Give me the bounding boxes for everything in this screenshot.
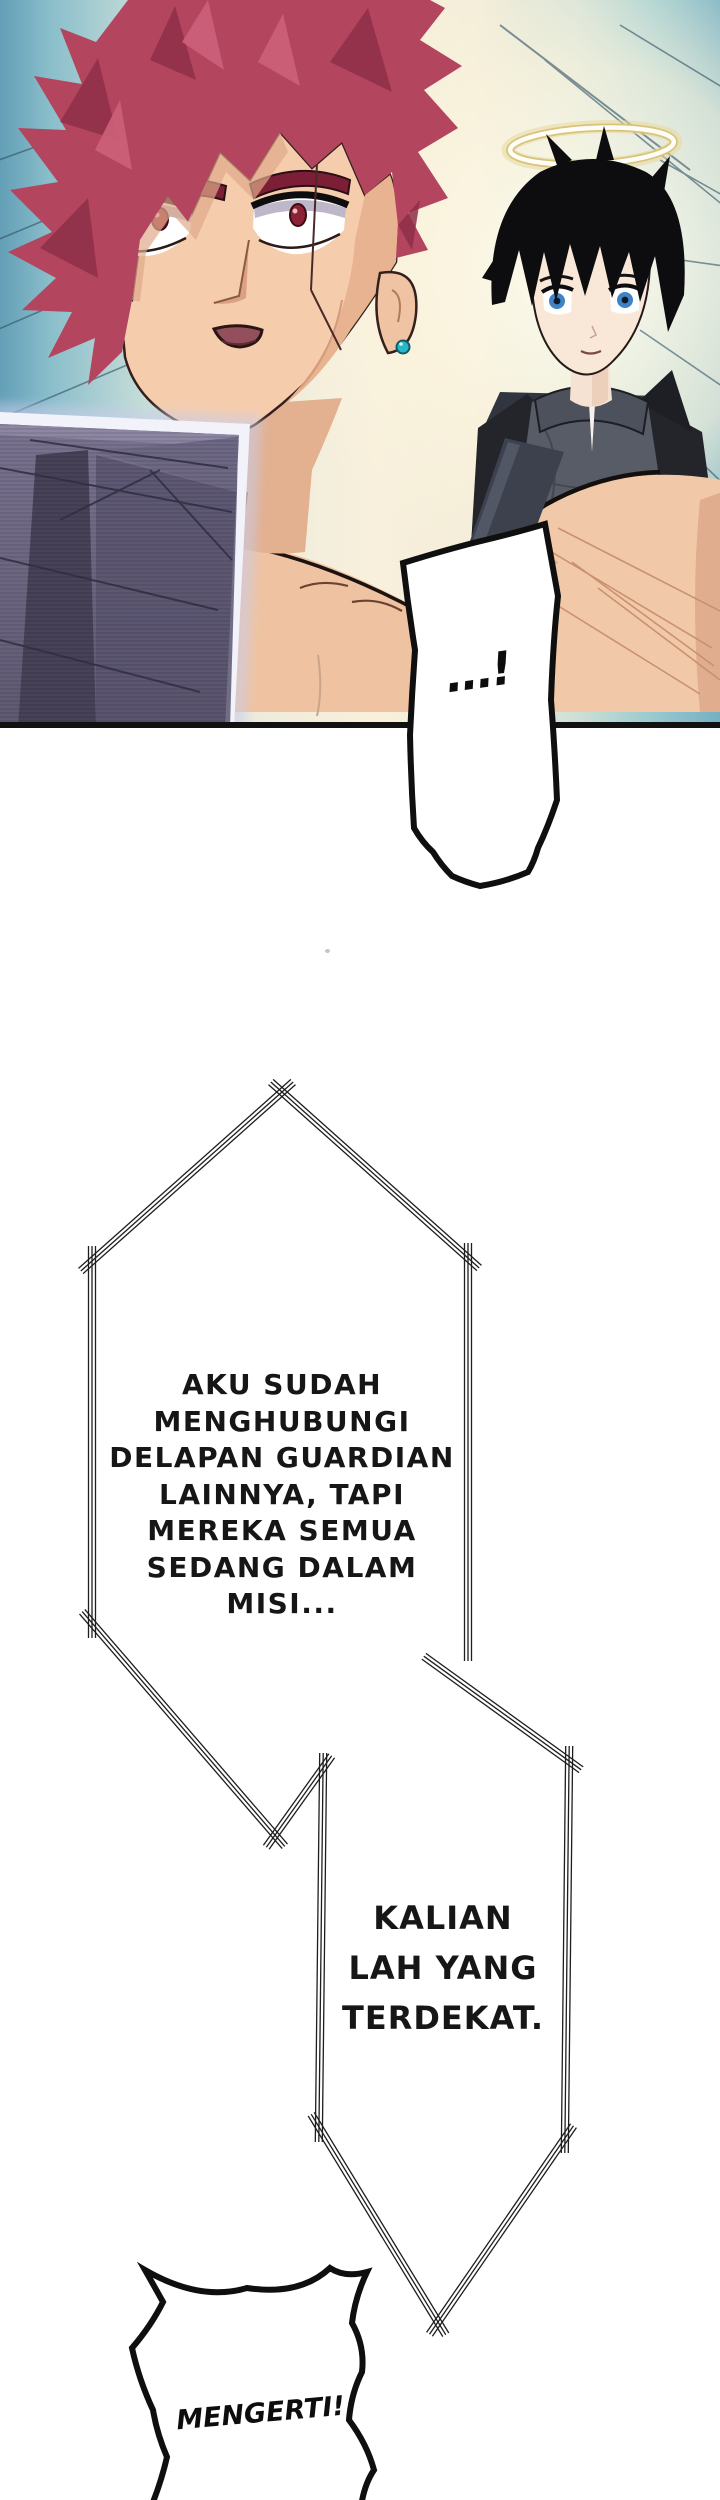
dialog-line: AKU SUDAH <box>92 1367 472 1404</box>
speech-bubble-2-text: KALIAN LAH YANG TERDEKAT. <box>303 1893 583 2043</box>
shout-bubble <box>105 2262 395 2500</box>
hologram-screen <box>0 402 262 728</box>
dialog-line: SEDANG DALAM <box>92 1550 472 1587</box>
dialog-line: MISI... <box>92 1586 472 1623</box>
dialog-line: KALIAN <box>303 1893 583 1943</box>
dialog-line: MEREKA SEMUA <box>92 1513 472 1550</box>
dialog-line: MENGHUBUNGI <box>92 1404 472 1441</box>
dialog-line: LAH YANG <box>303 1943 583 1993</box>
dialog-line: TERDEKAT. <box>303 1993 583 2043</box>
panel-illustration <box>0 0 720 728</box>
earring <box>397 341 410 354</box>
dialog-line: DELAPAN GUARDIAN <box>92 1440 472 1477</box>
art-panel <box>0 0 720 728</box>
ink-speck <box>325 949 330 953</box>
manga-page: ...! AKU SUDAH MENGHUBUNGI DELAPAN GUARD… <box>0 0 720 2500</box>
panel-border <box>0 722 720 728</box>
dialog-line: LAINNYA, TAPI <box>92 1477 472 1514</box>
speech-bubble-1-text: AKU SUDAH MENGHUBUNGI DELAPAN GUARDIAN L… <box>92 1367 472 1623</box>
angular-speech-bubbles <box>0 1060 720 2350</box>
